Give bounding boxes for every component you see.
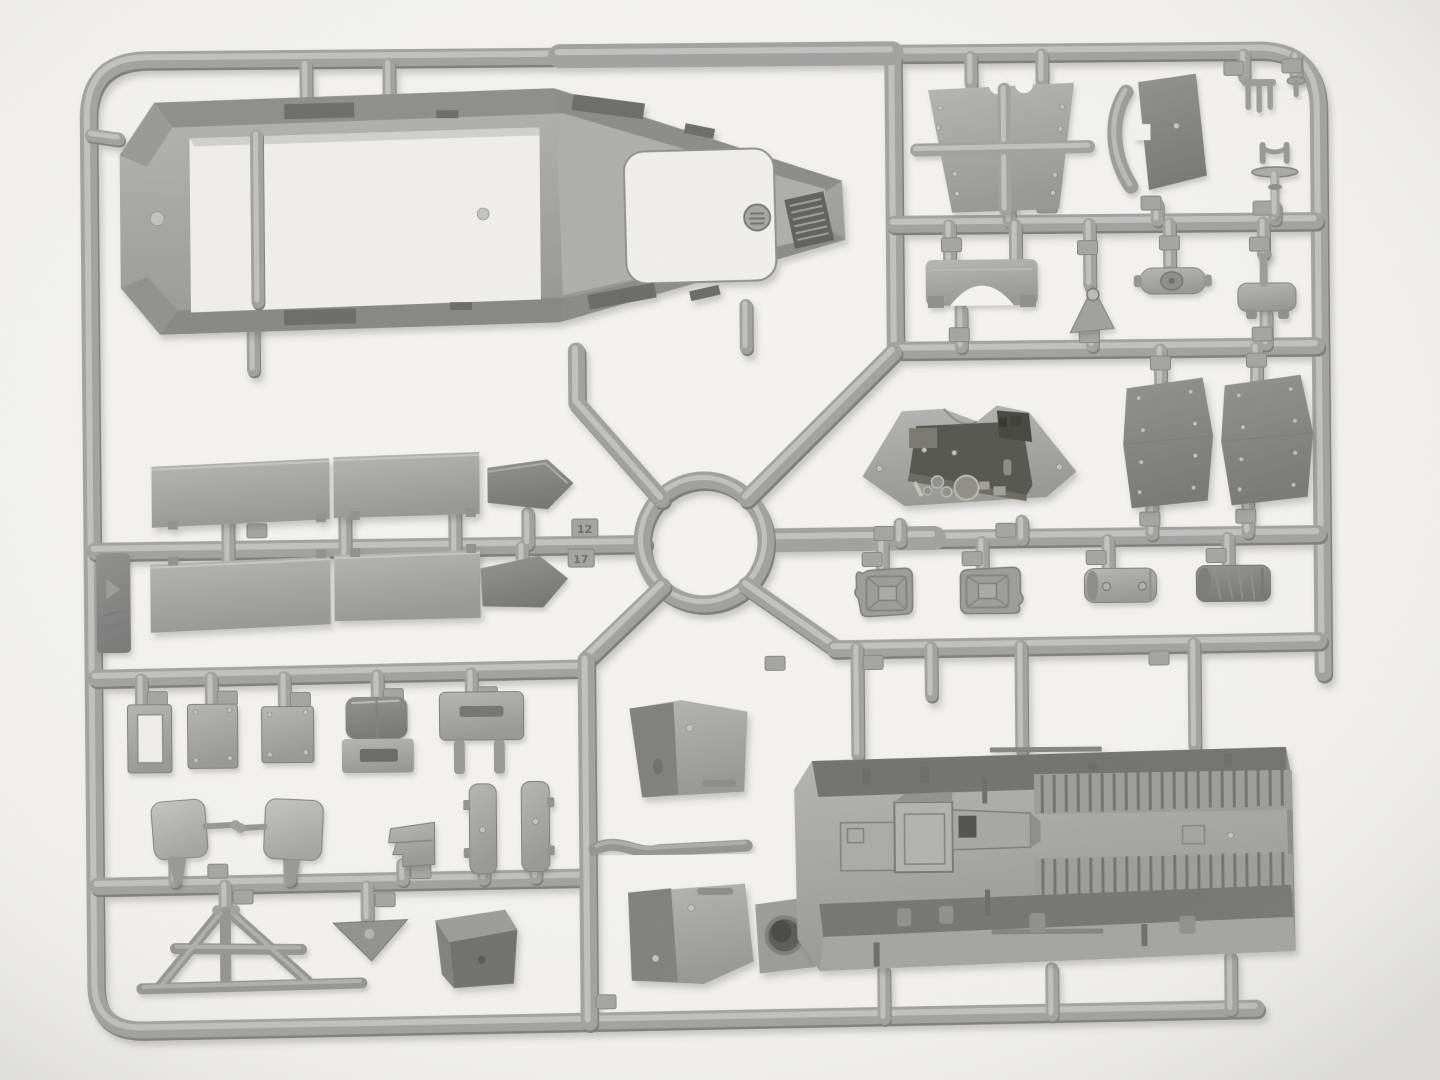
vignette [0, 0, 1440, 1080]
photo-stage: 12 17 [0, 0, 1440, 1080]
sprue-photo: 12 17 [0, 0, 1440, 1080]
